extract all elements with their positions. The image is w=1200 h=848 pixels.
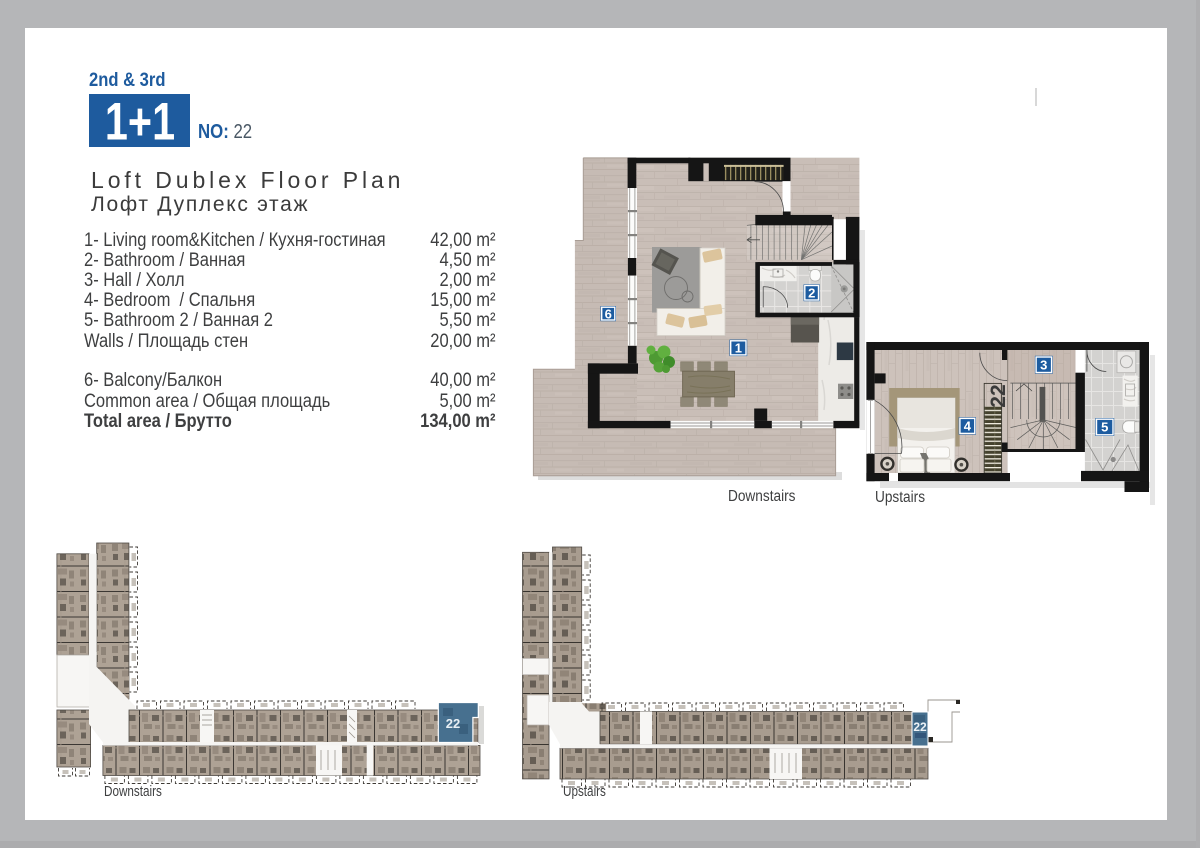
svg-text:2: 2 xyxy=(808,285,815,300)
svg-text:4: 4 xyxy=(964,419,972,434)
svg-text:6: 6 xyxy=(605,306,612,321)
svg-text:3: 3 xyxy=(1040,357,1047,372)
svg-text:1: 1 xyxy=(735,341,742,356)
svg-text:22: 22 xyxy=(446,716,460,731)
svg-text:22: 22 xyxy=(913,720,927,734)
svg-text:22: 22 xyxy=(987,384,1010,407)
svg-text:5: 5 xyxy=(1101,420,1108,435)
